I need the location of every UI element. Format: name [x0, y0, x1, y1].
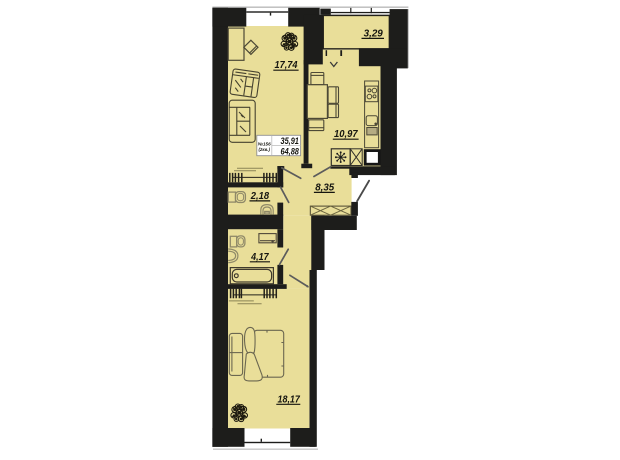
svg-text:8,35: 8,35	[315, 182, 334, 193]
svg-text:64,88: 64,88	[281, 145, 300, 156]
svg-text:№156: №156	[258, 142, 271, 147]
svg-text:17,74: 17,74	[275, 60, 298, 71]
svg-text:10,97: 10,97	[334, 129, 358, 140]
svg-text:(2кв.): (2кв.)	[258, 147, 270, 152]
